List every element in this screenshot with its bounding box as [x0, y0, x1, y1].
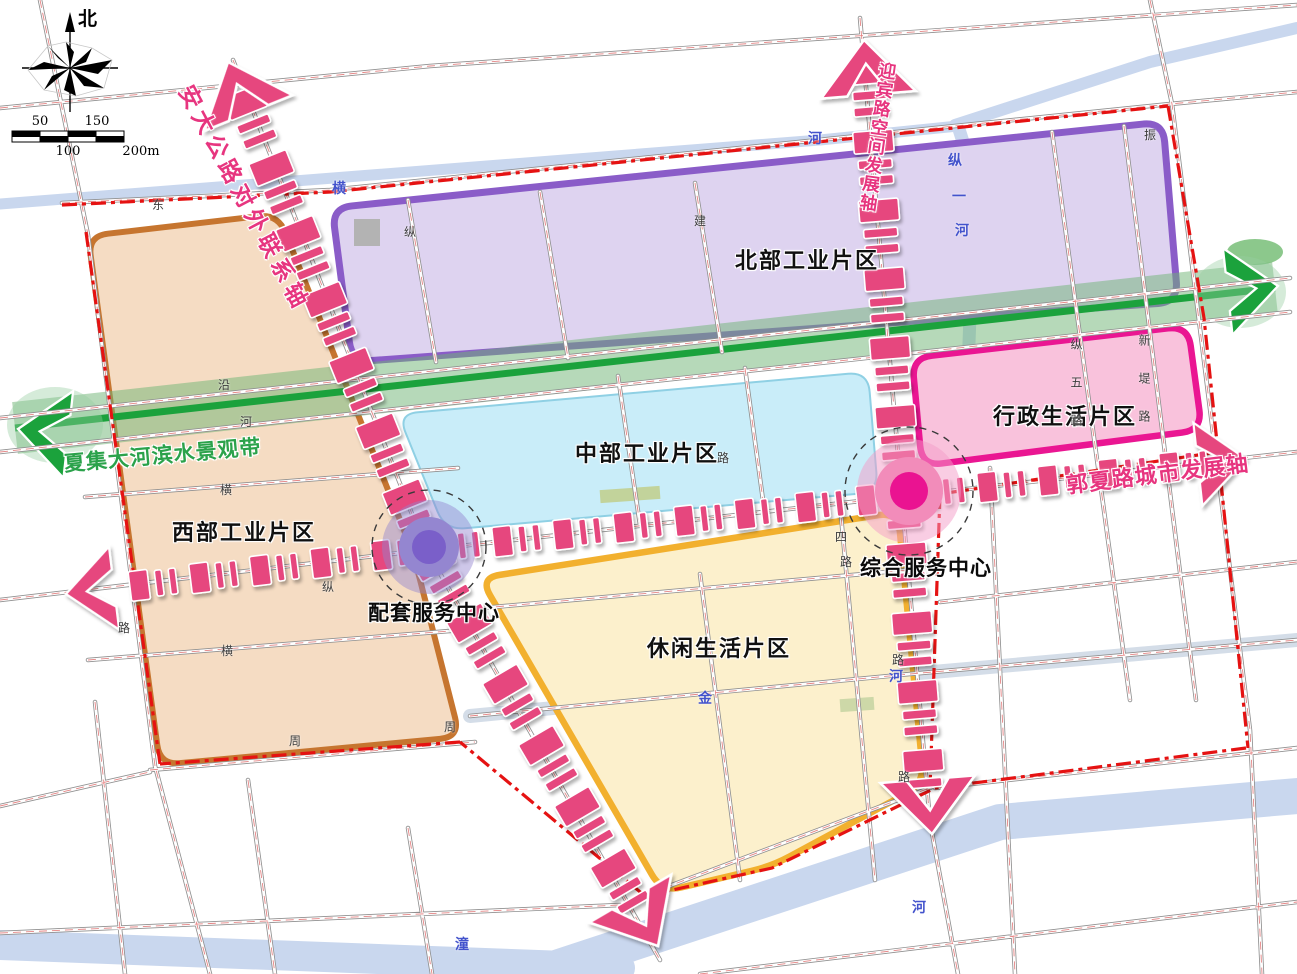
map-canvas: [0, 0, 1297, 974]
supporting-service-center-node: [372, 490, 486, 604]
building-block: [354, 219, 380, 246]
urban-plan-map: 北部工业片区西部工业片区中部工业片区行政生活片区休闲生活片区配套服务中心综合服务…: [0, 0, 1297, 974]
scale-bar: [12, 131, 124, 142]
